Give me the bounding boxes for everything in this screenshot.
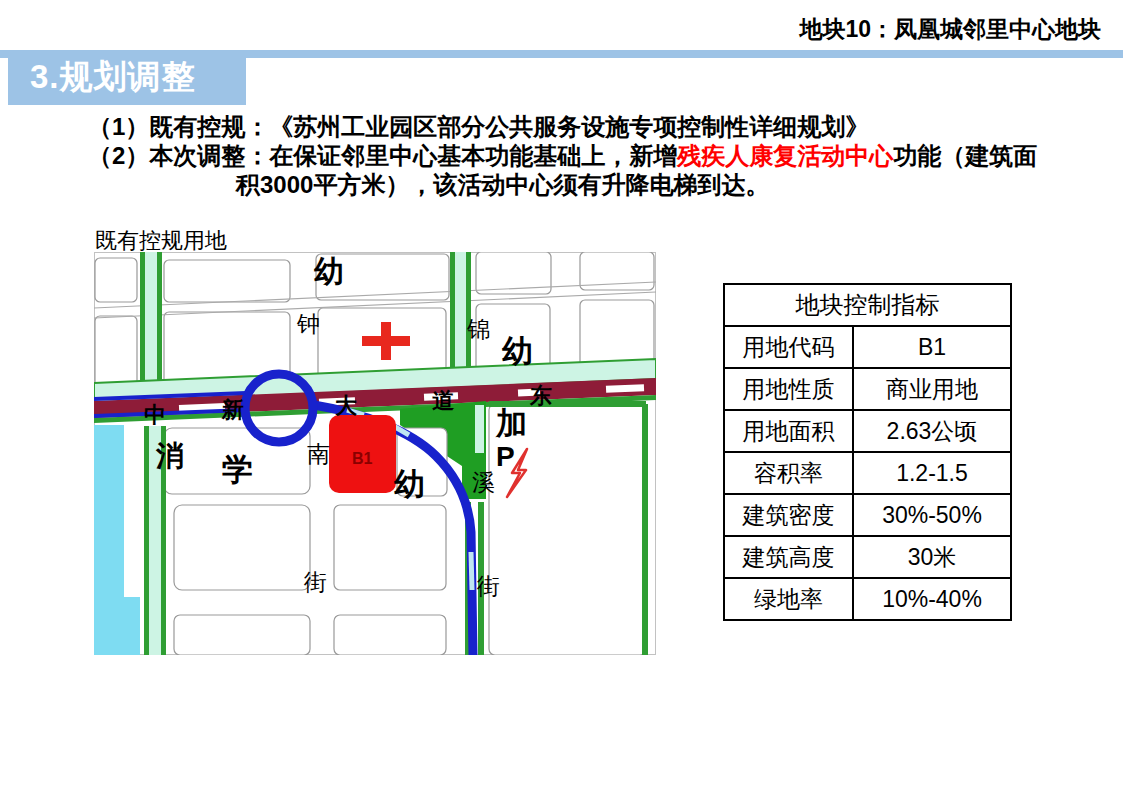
note-2-prefix: （2）本次调整：	[88, 142, 269, 169]
map-label-zhong: 钟	[296, 311, 320, 337]
table-row: 建筑密度 30%-50%	[724, 494, 1011, 536]
map-label-road-da: 大	[335, 393, 358, 418]
map-label-road-dao: 道	[432, 388, 455, 413]
water-area	[94, 597, 140, 655]
map-label-xiao: 消	[155, 440, 184, 471]
section-title: 3.规划调整	[30, 55, 196, 100]
row-value: B1	[853, 326, 1011, 368]
city-block	[174, 505, 310, 590]
map-label-jia: 加	[495, 406, 527, 441]
note-2-before: 在保证邻里中心基本功能基础上，新增	[269, 142, 677, 169]
map-label-road-dong: 东	[529, 383, 552, 408]
row-label: 用地性质	[724, 368, 853, 410]
row-value: 1.2-1.5	[853, 452, 1011, 494]
note-line-3: 积3000平方米），该活动中心须有升降电梯到达。	[88, 170, 1037, 199]
note-2-highlight: 残疾人康复活动中心	[677, 142, 893, 169]
map-label-kindergarten-south: 幼	[394, 467, 425, 502]
table-row: 用地性质 商业用地	[724, 368, 1011, 410]
header-plot-label: 地块10：凤凰城邻里中心地块	[799, 14, 1101, 45]
map-label-parking: P	[496, 441, 515, 472]
slide: 地块10：凤凰城邻里中心地块 3.规划调整 （1）既有控规：《苏州工业园区部分公…	[0, 0, 1123, 794]
greenway-street-jinxi-north	[450, 252, 471, 376]
row-label: 用地面积	[724, 410, 853, 452]
map-label-road-zhong: 中	[144, 402, 166, 427]
city-block	[334, 615, 446, 655]
note-1-prefix: （1）既有控规：	[88, 113, 269, 140]
map-label-jie-right: 街	[476, 573, 500, 599]
map-label-jie-left: 街	[303, 569, 327, 595]
row-value: 10%-40%	[853, 578, 1011, 620]
table-row: 用地面积 2.63公顷	[724, 410, 1011, 452]
table-row: 绿地率 10%-40%	[724, 578, 1011, 620]
map-label-kindergarten-top: 幼	[314, 255, 344, 288]
row-label: 建筑高度	[724, 536, 853, 578]
zoning-map-svg: B1 幼 钟 锦 幼 消 学 南 幼 溪 加 P 街 街 中 新 大	[94, 252, 656, 655]
table-row: 建筑高度 30米	[724, 536, 1011, 578]
zoning-map: B1 幼 钟 锦 幼 消 学 南 幼 溪 加 P 街 街 中 新 大	[94, 252, 656, 655]
row-value: 商业用地	[853, 368, 1011, 410]
row-value: 30米	[853, 536, 1011, 578]
map-label-xue: 学	[222, 452, 253, 487]
map-label-kindergarten-right: 幼	[502, 334, 533, 369]
notes-block: （1）既有控规：《苏州工业园区部分公共服务设施专项控制性详细规划》 （2）本次调…	[88, 112, 1037, 199]
city-block	[174, 615, 310, 655]
section-title-bar: 3.规划调整	[8, 50, 246, 105]
note-line-1: （1）既有控规：《苏州工业园区部分公共服务设施专项控制性详细规划》	[88, 112, 1037, 141]
table-row: 用地代码 B1	[724, 326, 1011, 368]
city-block	[95, 258, 137, 302]
map-label-road-xin: 新	[221, 397, 244, 422]
table-row: 容积率 1.2-1.5	[724, 452, 1011, 494]
row-value: 2.63公顷	[853, 410, 1011, 452]
table-title: 地块控制指标	[724, 284, 1011, 326]
city-block	[164, 260, 290, 302]
map-label-nan: 南	[307, 441, 330, 467]
note-2-after: 功能（建筑面	[893, 142, 1037, 169]
control-indicators-table: 地块控制指标 用地代码 B1 用地性质 商业用地 用地面积 2.63公顷 容积率…	[723, 283, 1012, 621]
row-label: 容积率	[724, 452, 853, 494]
row-label: 绿地率	[724, 578, 853, 620]
row-label: 用地代码	[724, 326, 853, 368]
city-block	[334, 505, 446, 590]
parcel-b1-label: B1	[352, 450, 373, 467]
map-label-xi: 溪	[472, 469, 495, 495]
note-line-2: （2）本次调整：在保证邻里中心基本功能基础上，新增残疾人康复活动中心功能（建筑面	[88, 141, 1037, 170]
table-header-row: 地块控制指标	[724, 284, 1011, 326]
row-value: 30%-50%	[853, 494, 1011, 536]
block-green-edge	[642, 404, 648, 655]
park-cyan-strip	[475, 405, 484, 453]
row-label: 建筑密度	[724, 494, 853, 536]
map-label-jin: 锦	[466, 316, 490, 342]
note-1-text: 《苏州工业园区部分公共服务设施专项控制性详细规划》	[269, 113, 869, 140]
